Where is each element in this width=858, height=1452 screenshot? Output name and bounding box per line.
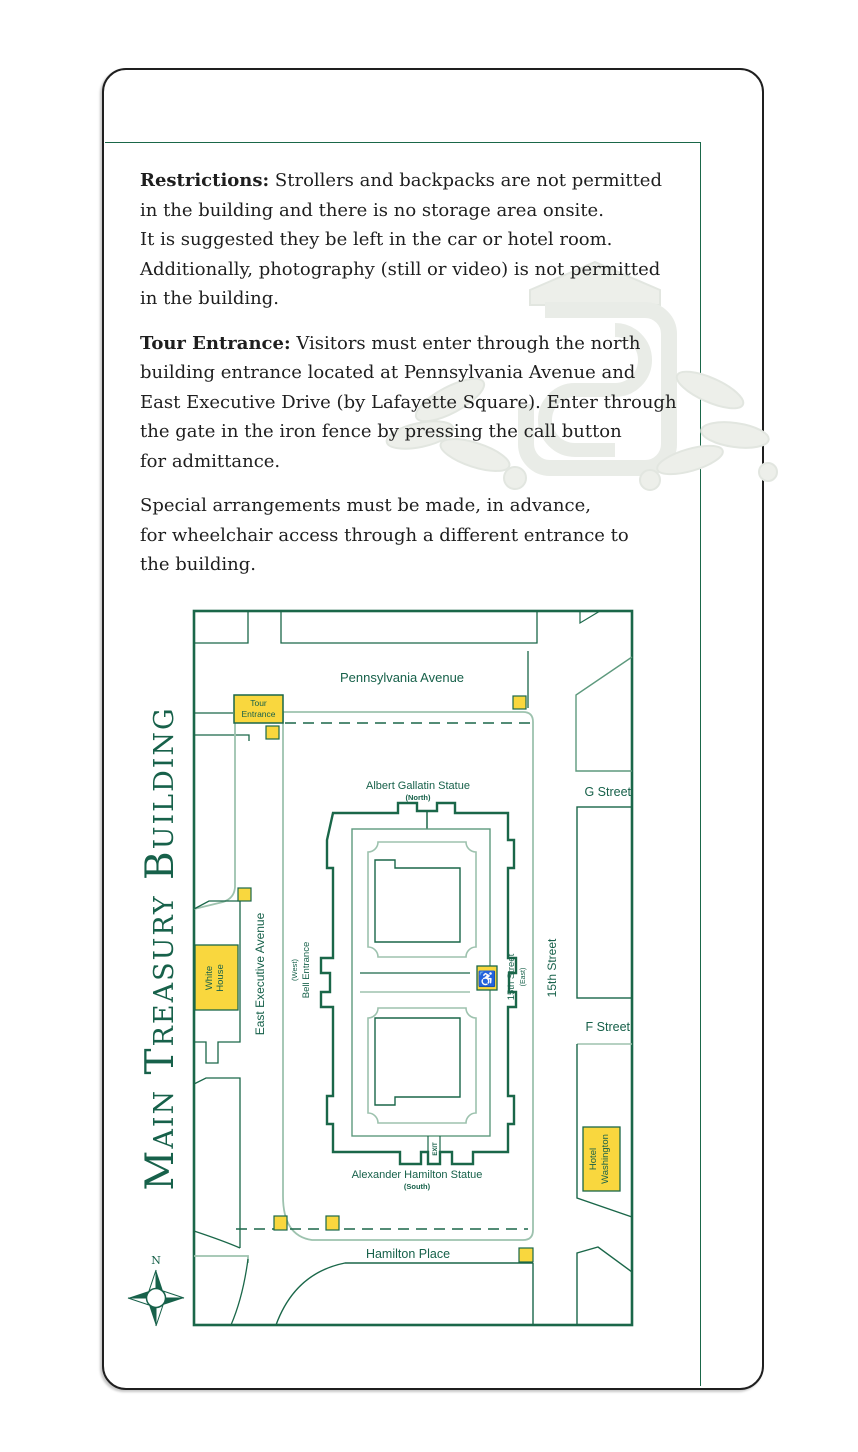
hamilton-statue-sublabel: (South)	[404, 1182, 431, 1191]
block-east	[577, 807, 632, 998]
hamilton-place-label: Hamilton Place	[366, 1247, 450, 1261]
block-southwest-corner	[194, 1256, 248, 1263]
fifteenth-street-label: 15th Street	[545, 938, 559, 997]
block-northeast-corner	[580, 611, 600, 623]
block-southeast	[577, 1247, 632, 1325]
road-curve-southwest-lower	[231, 1259, 248, 1325]
gallatin-statue-sublabel: (North)	[406, 793, 431, 802]
gate-marker-southwest-1	[274, 1216, 287, 1230]
pennsylvania-ave-curb-south	[194, 735, 249, 741]
gate-marker-east-executive	[238, 888, 251, 901]
g-street-label: G Street	[584, 785, 631, 799]
tour-entrance-label-1: Tour	[250, 698, 267, 708]
white-house-label-2: House	[215, 964, 226, 991]
hotel-washington-label-1: Hotel	[588, 1148, 599, 1170]
block-g-street-north	[576, 657, 632, 771]
wheelchair-icon: ♿	[478, 970, 497, 988]
hamilton-statue-label: Alexander Hamilton Statue	[352, 1169, 483, 1181]
block-north	[281, 611, 537, 643]
east-executive-curb-west	[194, 723, 235, 909]
compass-star	[128, 1270, 184, 1326]
f-street-label: F Street	[586, 1020, 631, 1034]
pennsylvania-avenue-label: Pennsylvania Avenue	[340, 670, 464, 685]
fifteenth-street-east-sublabel: (East)	[520, 968, 527, 987]
hotel-washington-label-2: Washington	[600, 1134, 611, 1184]
hamilton-place-curb-south	[276, 1263, 533, 1325]
tour-entrance-label-2: Entrance	[241, 709, 275, 719]
block-northwest	[194, 611, 248, 643]
exit-label: EXIT	[433, 1142, 439, 1156]
gallatin-statue-label: Albert Gallatin Statue	[366, 780, 470, 792]
compass-center	[147, 1289, 166, 1308]
gate-marker-northeast	[513, 696, 526, 709]
white-house-south-grounds	[194, 1078, 240, 1248]
gate-marker-northwest	[266, 726, 279, 739]
gate-marker-hamilton	[519, 1248, 533, 1262]
east-executive-avenue-label: East Executive Avenue	[253, 912, 267, 1035]
white-house-label-1: White	[204, 966, 215, 990]
gate-marker-southwest-2	[326, 1216, 339, 1230]
site-map: ♿ Pennsylvania Avenue Tour Entrance Albe…	[0, 0, 858, 1452]
road-curve-southwest-upper	[194, 1231, 240, 1248]
bell-entrance-label: Bell Entrance	[301, 942, 312, 999]
bell-entrance-sublabel: (West)	[290, 959, 299, 981]
fifteenth-street-east-label: 15th Street	[506, 953, 517, 1000]
brochure-page: Restrictions: Strollers and backpacks ar…	[0, 0, 858, 1452]
compass-rose: N	[128, 1254, 184, 1326]
north-label: N	[151, 1254, 161, 1267]
